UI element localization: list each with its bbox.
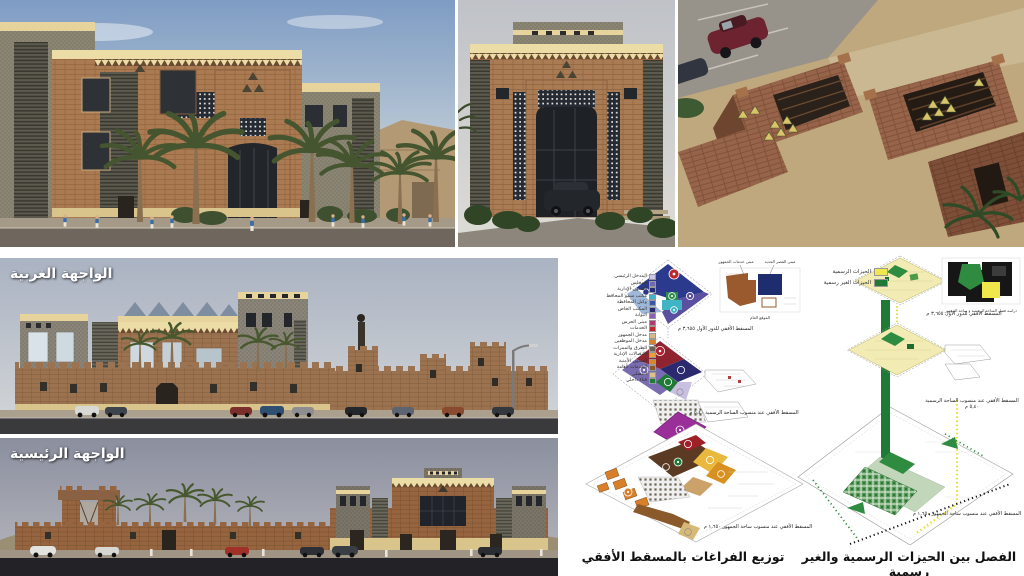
main-facade-label: الواجهة الرئيسية <box>10 446 125 462</box>
entrance-illustration <box>458 0 675 247</box>
aerial-illustration <box>678 0 1024 247</box>
legend-chip <box>649 313 656 319</box>
legend-chip <box>649 287 656 293</box>
legend-chip <box>649 365 656 371</box>
legend-chip <box>649 352 656 358</box>
elevation-main-facade: الواجهة الرئيسية <box>0 438 558 576</box>
plan-ground-floor-formal <box>847 323 991 380</box>
key-plan-label-services: مبنى خدمات الجمهور <box>717 259 753 264</box>
street <box>0 218 455 247</box>
elevation-west-facade: الواجهة الغربية <box>0 258 558 434</box>
key-plan-label-palace: مبنى القصر الجديد <box>765 259 796 264</box>
legend-chip <box>649 372 656 378</box>
legend-item: الحيزات الغير رسمية <box>798 277 888 288</box>
left-diagram-title: توزيع الفراغات بالمسقط الأفقي <box>563 549 803 564</box>
street <box>0 550 558 576</box>
caption-first-floor: المسقط الأفقي للدور الأول ٣,٦٥٥ م <box>658 326 773 332</box>
legend-chip <box>649 300 656 306</box>
legend-chip <box>649 333 656 339</box>
legend-chip <box>649 307 656 313</box>
legend-chip <box>649 294 656 300</box>
key-plan-site: مبنى خدمات الجمهور مبنى القصر الجديد الم… <box>717 259 800 320</box>
formal-zone <box>982 282 1000 298</box>
legend-chip <box>874 268 888 276</box>
render-entrance-front <box>458 0 675 247</box>
space-distribution-legend: المدخل الرئيسي المجلس الشئون الإدارية مك… <box>576 274 656 385</box>
legend-chip <box>649 339 656 345</box>
formal-informal-legend: الحيزات الرسمية الحيزات الغير رسمية <box>798 266 888 288</box>
render-aerial-roof <box>678 0 1024 247</box>
legend-chip <box>649 326 656 332</box>
caption-formal-plaza-right: المسقط الأفقي عند منسوب الساحة الرسمية ٥… <box>922 398 1022 410</box>
legend-chip <box>874 279 888 287</box>
caption-formal-plaza: المسقط الأفقي عند منسوب الساحة الرسمية ٥… <box>688 410 800 416</box>
caption-first-floor-right: المسقط الأفقي للدور الأول ٣,٦٥٥ م <box>910 311 1018 317</box>
legend-item: فناء داخلي <box>576 378 656 385</box>
legend-item: الحيزات الرسمية <box>798 266 888 277</box>
legend-chip <box>649 378 656 384</box>
west-facade-label: الواجهة الغربية <box>10 266 112 282</box>
legend-chip <box>649 346 656 352</box>
presentation-board: الواجهة الغربية <box>0 0 1024 576</box>
separation-key-plan: دراسة فصل الساحة الرسمية و ساحة الجمهور <box>940 256 1022 316</box>
legend-chip <box>649 359 656 365</box>
right-diagram-title: الفصل بين الحيزات الرسمية والغير رسمية <box>796 549 1022 576</box>
legend-chip <box>649 281 656 287</box>
render-street-perspective <box>0 0 455 247</box>
legend-chip <box>649 320 656 326</box>
analysis-diagrams: المدخل الرئيسي المجلس الشئون الإدارية مك… <box>558 247 1024 576</box>
street-perspective-illustration <box>0 0 455 247</box>
caption-public-plaza-right: المسقط الأفقي عند منسوب ساحة الجمهور ١,٦… <box>912 511 1022 517</box>
key-plan-caption: الموقع العام <box>750 315 770 320</box>
caption-public-plaza: المسقط الأفقي عند منسوب ساحة الجمهور ١,٦… <box>698 524 818 530</box>
west-elevation-illustration <box>0 258 558 434</box>
legend-chip <box>649 274 656 280</box>
